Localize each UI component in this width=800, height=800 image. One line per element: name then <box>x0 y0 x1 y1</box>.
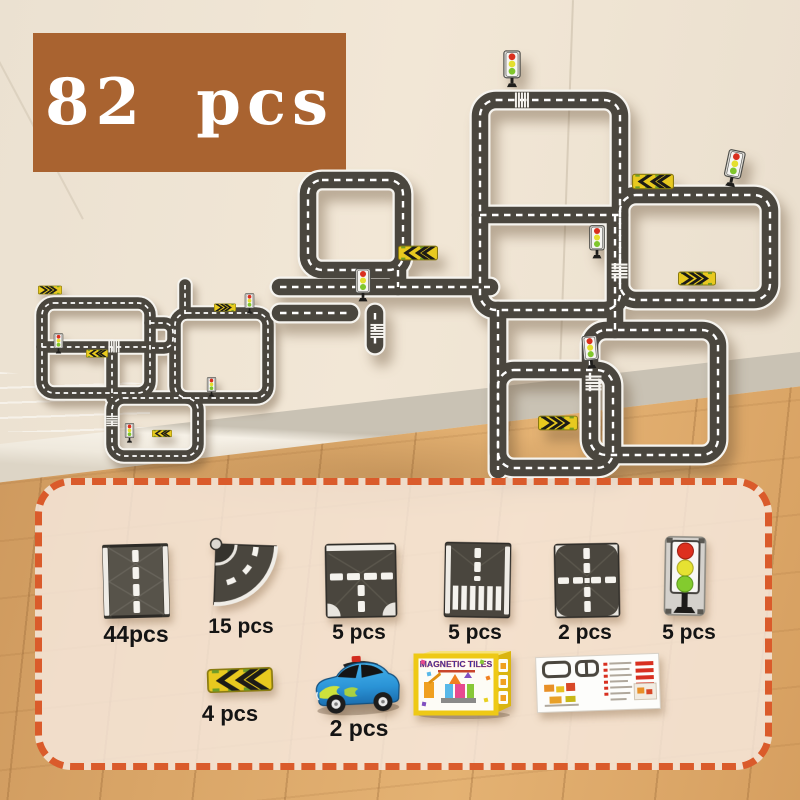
straight-road-count: 44pcs <box>103 621 168 648</box>
crosswalk-tile-icon <box>443 541 511 618</box>
toy-car-count: 2 pcs <box>330 715 389 742</box>
t-junction-tile-icon <box>324 542 397 618</box>
cross-intersection-tile-icon <box>553 542 620 618</box>
cross-intersection-count: 2 pcs <box>558 621 612 645</box>
chevron-sign-icon <box>214 304 235 312</box>
traffic-light-icon <box>125 423 134 442</box>
t-junction-count: 5 pcs <box>332 621 386 645</box>
chevron-sign-icon <box>152 430 171 437</box>
small-track-layout <box>12 283 278 468</box>
chevron-sign-icon <box>539 416 578 430</box>
magnetic-tiles-box: MAGNETIC TILES <box>410 648 520 720</box>
large-track-layout <box>280 45 790 480</box>
traffic-light-icon <box>722 149 745 188</box>
product-image: 82 pcs <box>0 0 800 800</box>
traffic-light-icon <box>590 226 605 259</box>
curve-road-count: 15 pcs <box>208 615 273 639</box>
crosswalk-count: 5 pcs <box>448 621 502 645</box>
chevron-sign-icon <box>633 174 674 188</box>
traffic-light-icon <box>660 535 709 620</box>
straight-road-tile-icon <box>101 542 171 620</box>
chevron-sign-icon <box>679 272 716 285</box>
chevron-sign-icon <box>86 350 107 358</box>
instruction-sheet <box>535 653 661 713</box>
traffic-light-icon <box>504 51 520 87</box>
traffic-light-count: 5 pcs <box>662 621 716 645</box>
toy-car-icon <box>308 649 405 720</box>
chevron-sign-icon <box>38 286 61 294</box>
contents-panel: 44pcs 15 pcs 5 pcs <box>35 478 772 770</box>
chevron-sign-icon <box>399 246 438 260</box>
curve-road-tile-icon <box>204 536 279 616</box>
chevron-sign-icon <box>206 660 273 700</box>
chevron-sign-count: 4 pcs <box>202 701 258 727</box>
